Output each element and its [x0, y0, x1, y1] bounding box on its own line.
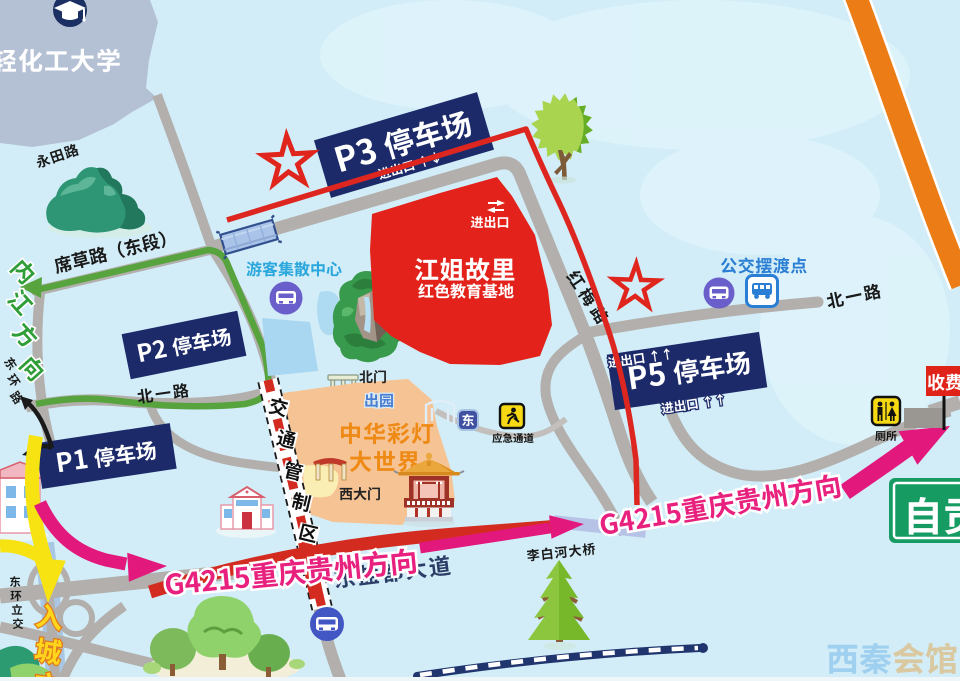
svg-text:收费: 收费	[927, 369, 960, 395]
svg-text:东: 东	[461, 410, 474, 429]
svg-text:厕所: 厕所	[875, 428, 897, 444]
svg-text:北门: 北门	[359, 367, 387, 387]
svg-text:进出口: 进出口	[470, 212, 509, 231]
svg-text:西大门: 西大门	[339, 484, 381, 504]
svg-text:自贡: 自贡	[903, 485, 960, 543]
svg-text:公交摆渡点: 公交摆渡点	[720, 252, 808, 277]
svg-text:西秦会馆: 西秦会馆	[826, 633, 958, 681]
svg-text:游客集散中心: 游客集散中心	[246, 256, 342, 280]
svg-text:轻化工大学: 轻化工大学	[0, 42, 122, 78]
svg-text:出园: 出园	[364, 390, 394, 411]
svg-text:应急通道: 应急通道	[492, 431, 534, 446]
svg-text:红色教育基地: 红色教育基地	[418, 278, 514, 302]
